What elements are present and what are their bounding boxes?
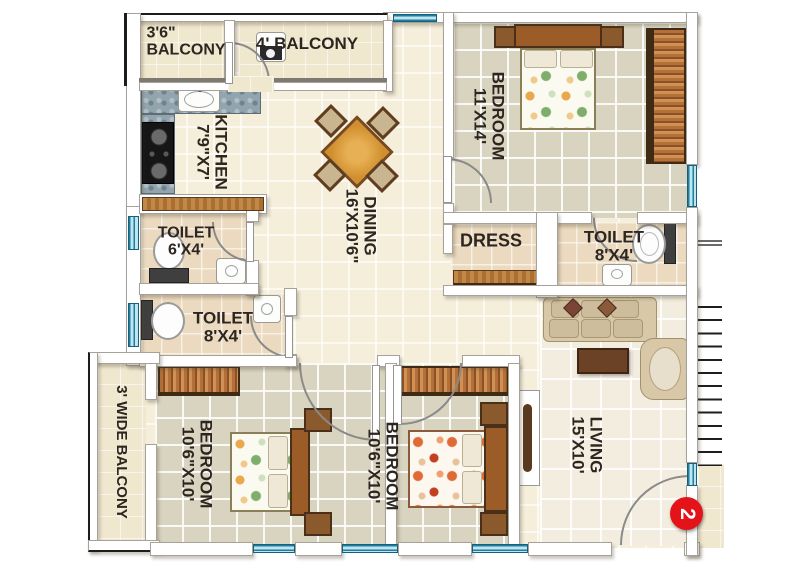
bed-headboard <box>290 428 310 516</box>
pillow-icon <box>524 50 557 68</box>
wall <box>686 12 698 165</box>
wall <box>443 285 698 296</box>
pillow-icon <box>462 434 482 467</box>
wall <box>139 283 259 295</box>
wash-basin-icon <box>602 264 632 286</box>
window <box>687 165 697 207</box>
room-dims: 11'X14' <box>471 72 489 161</box>
room-name: BEDROOM <box>489 72 507 161</box>
nightstand-icon <box>480 512 508 536</box>
window <box>253 544 295 553</box>
room-dims: 8'X4' <box>584 246 644 264</box>
living-label: LIVING 15'X10' <box>569 416 604 473</box>
window <box>393 14 437 22</box>
bedroom-middle-label: BEDROOM 10'6"X10' <box>365 422 400 511</box>
wall <box>443 224 453 254</box>
dining-label: DINING 16'X10'6" <box>343 189 378 264</box>
wall <box>284 288 297 316</box>
room-name: BALCONY <box>146 42 225 59</box>
door-leaf <box>443 156 452 203</box>
wall <box>145 363 157 400</box>
bedroom-left-label: BEDROOM 10'6"X10' <box>179 420 214 509</box>
wall <box>88 352 98 550</box>
toilet-common-label: TOILET 8'X4' <box>193 309 253 344</box>
floor-plan: 3'6" BALCONY 4' BALCONY KITCHEN 7'9"X7' … <box>0 0 800 564</box>
coffee-table-icon <box>577 348 629 374</box>
wall <box>528 542 612 556</box>
pillow-icon <box>268 436 288 470</box>
dress-label: DRESS <box>460 232 522 251</box>
landing-ledge <box>696 240 722 246</box>
unit-number: 2 <box>675 508 699 520</box>
room-name: DRESS <box>460 232 522 251</box>
kitchen-label: KITCHEN 7'9"X7' <box>194 114 229 190</box>
door-leaf <box>246 222 254 262</box>
bedroom-master-label: BEDROOM 11'X14' <box>471 72 506 161</box>
door-leaf <box>393 365 402 425</box>
pillow-icon <box>462 471 482 504</box>
sofa-cushion <box>613 319 643 338</box>
nightstand-icon <box>480 402 508 426</box>
wall <box>139 355 297 367</box>
room-name: DINING <box>361 189 379 264</box>
window <box>128 216 139 250</box>
room-dims: 10'6"X10' <box>179 420 197 509</box>
wc-tank <box>149 268 189 283</box>
toilet-small-label: TOILET 6'X4' <box>158 225 215 258</box>
balcony-railing <box>124 13 127 86</box>
room-dims: 15'X10' <box>569 416 587 473</box>
room-dims: 6'X4' <box>158 242 215 259</box>
wall <box>145 444 157 544</box>
armchair-icon <box>640 338 688 400</box>
window <box>472 544 528 553</box>
wall <box>150 542 253 556</box>
wall <box>126 13 141 213</box>
balcony-side-label: 3' WIDE BALCONY <box>113 385 129 519</box>
room-dims: 8'X4' <box>193 327 253 345</box>
wc-icon <box>151 302 185 340</box>
toilet-master-label: TOILET 8'X4' <box>584 228 644 263</box>
window <box>687 463 697 486</box>
door-leaf <box>285 316 293 358</box>
unit-number-badge: 2 <box>670 497 703 530</box>
room-dims: 10'6"X10' <box>365 422 383 511</box>
room-name: TOILET <box>158 225 215 242</box>
door-opening <box>228 76 274 92</box>
wall <box>443 212 592 224</box>
entrance-porch-floor <box>698 464 724 548</box>
wall <box>508 363 520 545</box>
room-name: LIVING <box>587 416 605 473</box>
wash-basin-icon <box>216 258 246 284</box>
pillow-icon <box>268 474 288 508</box>
wall <box>443 12 454 158</box>
balcony-top-left-label: 3'6" BALCONY <box>146 25 225 58</box>
room-dims: 3'6" <box>146 25 225 42</box>
sofa-cushion <box>581 319 611 338</box>
room-name: BEDROOM <box>383 422 401 511</box>
staircase <box>698 306 722 466</box>
pillow-icon <box>560 50 593 68</box>
room-dims: 16'X10'6" <box>343 189 361 264</box>
room-name: KITCHEN <box>212 114 230 190</box>
window <box>342 544 398 553</box>
nightstand-icon <box>600 26 624 48</box>
bed-headboard <box>514 24 602 48</box>
window <box>128 303 139 347</box>
balcony-top-label: 4' BALCONY <box>256 35 358 53</box>
kitchen-platform <box>142 197 264 211</box>
wall <box>295 542 342 556</box>
bed-headboard <box>484 426 508 512</box>
door-leaf <box>225 42 233 84</box>
room-name: 3' WIDE BALCONY <box>113 385 129 519</box>
room-name: TOILET <box>584 228 644 246</box>
dress-shelf <box>453 270 537 286</box>
wardrobe-icon <box>158 366 240 396</box>
stove-icon <box>142 122 174 184</box>
room-name: BEDROOM <box>197 420 215 509</box>
room-name: TOILET <box>193 309 253 327</box>
balcony-railing <box>126 13 388 22</box>
wall <box>398 542 472 556</box>
sofa-cushion <box>549 319 579 338</box>
nightstand-icon <box>304 512 332 536</box>
room-name: 4' BALCONY <box>256 35 358 53</box>
room-dims: 7'9"X7' <box>194 114 212 190</box>
wardrobe-icon <box>652 28 686 164</box>
wall <box>686 207 698 463</box>
